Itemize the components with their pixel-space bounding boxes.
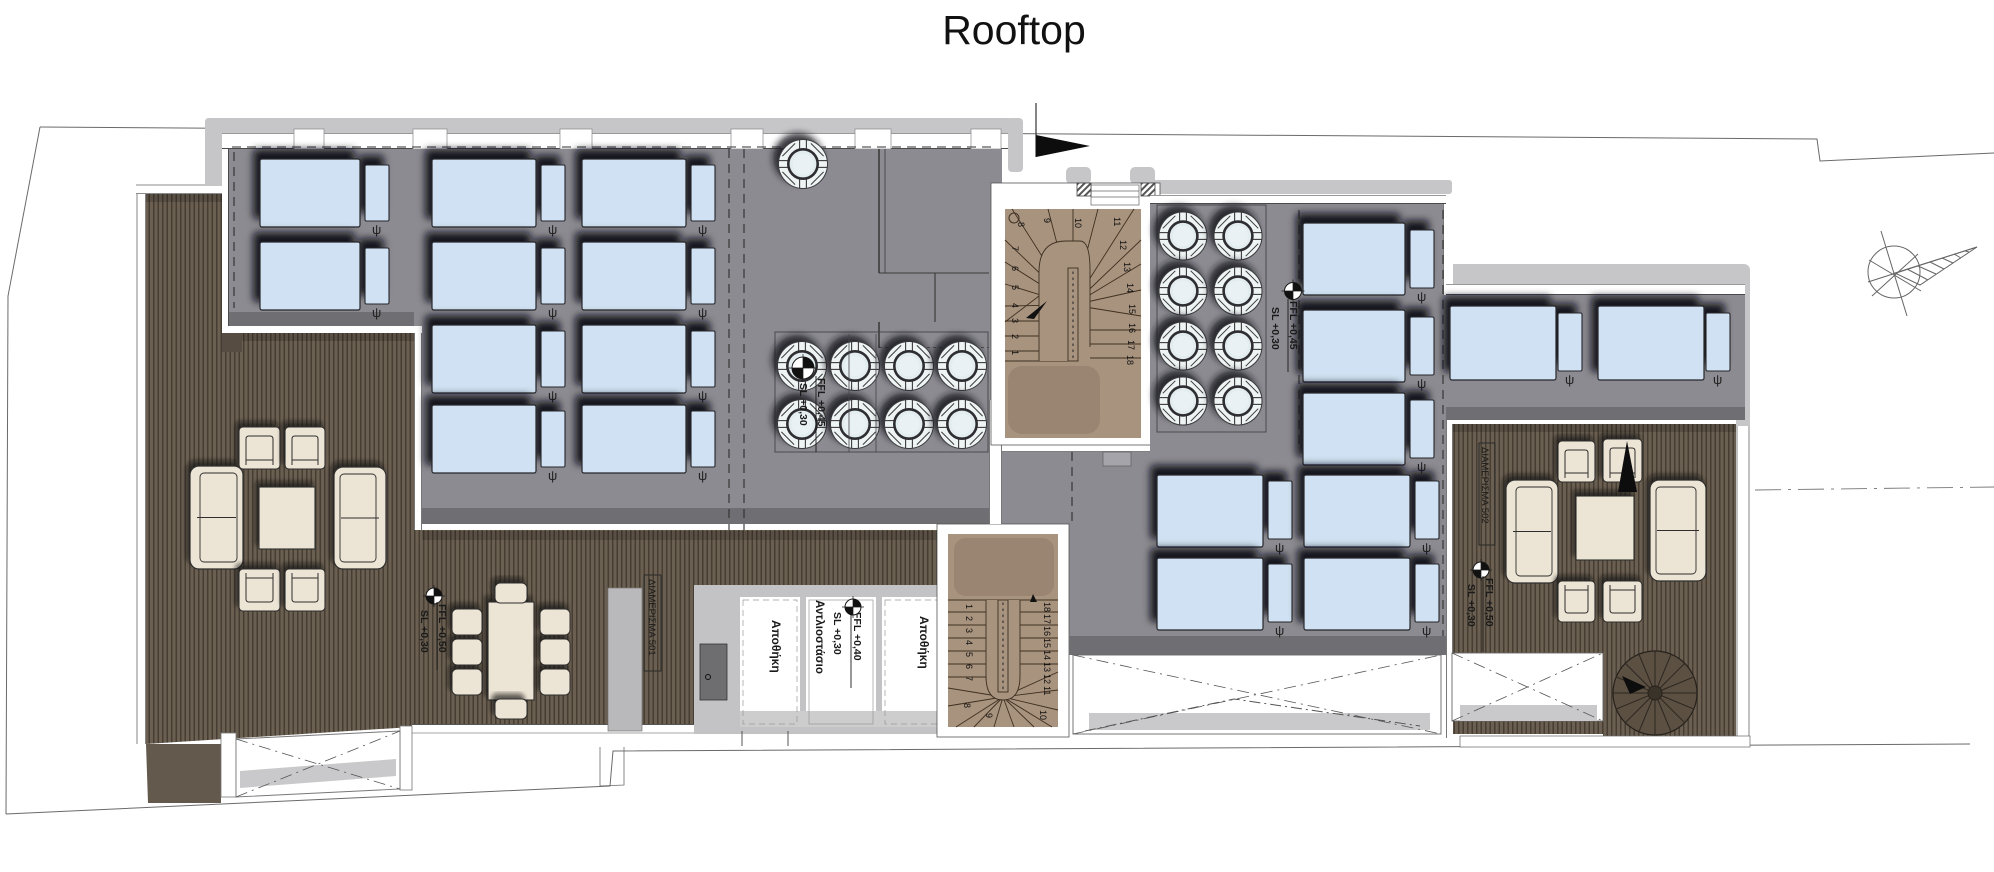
svg-text:Αντλιοστάσιο: Αντλιοστάσιο [813, 600, 825, 674]
svg-text:17: 17 [1126, 340, 1136, 350]
svg-text:12: 12 [1042, 674, 1052, 684]
svg-text:FFL +0,40: FFL +0,40 [851, 612, 863, 661]
svg-text:2: 2 [964, 616, 974, 621]
svg-text:SL +0,30: SL +0,30 [831, 612, 843, 655]
svg-text:3: 3 [1010, 318, 1020, 323]
svg-text:ψ: ψ [1713, 372, 1722, 387]
svg-text:FFL +0,50: FFL +0,50 [1483, 578, 1495, 627]
svg-text:15: 15 [1042, 638, 1052, 648]
svg-text:7: 7 [1010, 246, 1020, 251]
svg-text:FFL +0,45: FFL +0,45 [1287, 301, 1299, 350]
svg-text:6: 6 [964, 664, 974, 669]
svg-text:1: 1 [1010, 350, 1020, 355]
svg-text:SL +0,30: SL +0,30 [797, 383, 809, 426]
svg-text:13: 13 [1042, 662, 1052, 672]
svg-text:ψ: ψ [1422, 623, 1431, 638]
svg-text:ψ: ψ [1417, 459, 1426, 474]
svg-text:13: 13 [1122, 262, 1132, 272]
svg-text:FFL +0,50: FFL +0,50 [436, 604, 448, 653]
svg-text:ψ: ψ [1422, 540, 1431, 555]
svg-text:14: 14 [1042, 650, 1052, 660]
svg-text:SL +0,30: SL +0,30 [1269, 307, 1281, 350]
svg-text:ψ: ψ [372, 222, 381, 237]
svg-text:ΔΙΑΜΕΡΙΣΜΑ 501: ΔΙΑΜΕΡΙΣΜΑ 501 [646, 579, 657, 656]
svg-text:ψ: ψ [548, 222, 557, 237]
svg-text:ψ: ψ [372, 305, 381, 320]
svg-text:18: 18 [1125, 355, 1135, 365]
svg-text:11: 11 [1112, 217, 1122, 226]
svg-text:9: 9 [1042, 218, 1052, 223]
svg-text:ψ: ψ [698, 222, 707, 237]
svg-text:5: 5 [964, 652, 974, 657]
svg-text:8: 8 [962, 703, 972, 708]
svg-text:ψ: ψ [548, 305, 557, 320]
svg-text:9: 9 [984, 713, 994, 718]
svg-text:ψ: ψ [698, 468, 707, 483]
svg-text:SL +0,30: SL +0,30 [418, 610, 430, 653]
svg-text:17: 17 [1042, 614, 1052, 624]
svg-text:ψ: ψ [698, 388, 707, 403]
svg-text:8: 8 [1016, 222, 1026, 227]
svg-text:Αποθήκη: Αποθήκη [769, 620, 783, 673]
svg-text:ψ: ψ [1275, 623, 1284, 638]
svg-text:ψ: ψ [548, 388, 557, 403]
svg-text:Rooftop: Rooftop [942, 7, 1086, 53]
svg-text:11: 11 [1042, 686, 1052, 695]
svg-text:ψ: ψ [1565, 372, 1574, 387]
svg-text:1: 1 [964, 604, 974, 609]
svg-text:16: 16 [1127, 323, 1137, 333]
svg-text:3: 3 [964, 628, 974, 633]
svg-text:18: 18 [1042, 602, 1052, 612]
svg-text:Αποθήκη: Αποθήκη [917, 616, 931, 669]
svg-text:15: 15 [1127, 304, 1137, 314]
svg-text:2: 2 [1010, 334, 1020, 339]
svg-text:ψ: ψ [1275, 540, 1284, 555]
svg-text:4: 4 [964, 640, 974, 645]
svg-text:ψ: ψ [698, 305, 707, 320]
svg-text:ΔΙΑΜΕΡΙΣΜΑ 502: ΔΙΑΜΕΡΙΣΜΑ 502 [1479, 447, 1490, 524]
svg-text:ψ: ψ [1417, 376, 1426, 391]
svg-text:ψ: ψ [548, 468, 557, 483]
svg-text:4: 4 [1010, 303, 1020, 308]
svg-text:12: 12 [1118, 240, 1128, 250]
svg-text:16: 16 [1042, 626, 1052, 636]
svg-text:5: 5 [1010, 285, 1020, 290]
svg-text:FFL +0,45: FFL +0,45 [815, 378, 827, 427]
svg-text:10: 10 [1073, 218, 1083, 228]
svg-text:14: 14 [1125, 283, 1135, 293]
svg-text:10: 10 [1038, 710, 1048, 720]
svg-text:SL +0,30: SL +0,30 [1465, 584, 1477, 627]
svg-text:ψ: ψ [1417, 289, 1426, 304]
svg-text:7: 7 [964, 676, 974, 681]
svg-text:6: 6 [1010, 266, 1020, 271]
